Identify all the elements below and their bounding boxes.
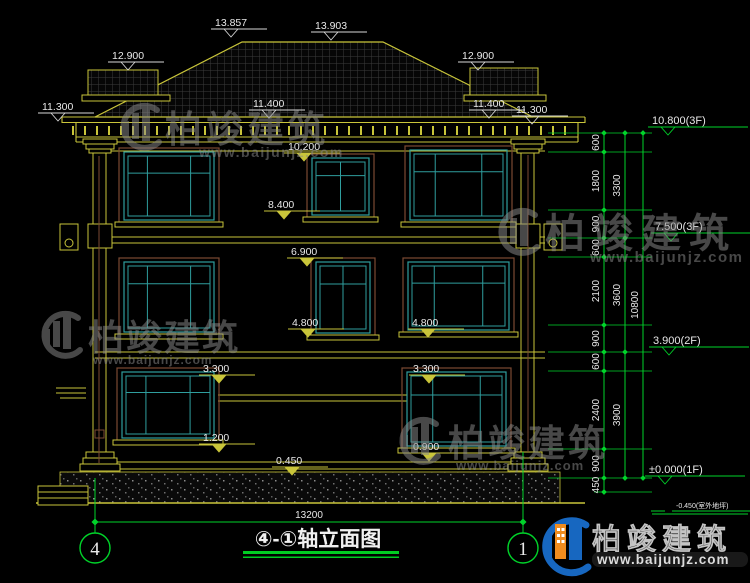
title-underline-thick <box>243 551 399 554</box>
elevation-label: 12.900 <box>462 50 494 62</box>
dimension-tick <box>601 349 607 355</box>
elevation-label: 11.400 <box>473 98 504 110</box>
dimension-tick <box>622 130 628 136</box>
watermark-url: www.baijunjz.com <box>589 249 743 266</box>
cad-elevation-drawing: { "meta": { "title_text": "④-①轴立面图" }, "… <box>0 0 750 583</box>
entry-steps <box>38 486 88 505</box>
dimension-value: 1800 <box>591 169 602 192</box>
dimension-value: 3600 <box>612 283 623 306</box>
dimension-value: 450 <box>591 476 602 493</box>
elevation-label: 11.300 <box>42 101 73 113</box>
elevation-label: 3.900(2F) <box>653 335 701 347</box>
dimension-tick <box>601 475 607 481</box>
roof-elevation-marker: 13.857 <box>211 17 267 37</box>
dimension-value: 2400 <box>591 398 602 421</box>
dimension-tick <box>622 475 628 481</box>
brand-logo: 柏竣建筑 www.baijunjz.com <box>546 519 748 573</box>
drawing-title: ④-①轴立面图 <box>255 527 382 551</box>
dimension-tick <box>601 322 607 328</box>
left-canopy-lines <box>56 388 86 398</box>
dimension-tick <box>601 368 607 374</box>
elevation-label: 3.300 <box>413 363 439 375</box>
dimension-tick <box>601 130 607 136</box>
elevation-label: 12.900 <box>112 50 144 62</box>
elevation-label: 11.300 <box>516 104 547 116</box>
elevation-label: ±0.000(1F) <box>649 464 703 476</box>
watermark-url: www.baijunjz.com <box>92 353 213 367</box>
window <box>401 146 516 227</box>
right-secondary-roof <box>470 68 538 95</box>
dimension-tick <box>640 130 646 136</box>
dimension-tick <box>601 489 607 495</box>
elevation-label: 1.200 <box>203 432 229 444</box>
facade-elevation-marker: 1.200 <box>199 432 255 452</box>
dimension-value: 2100 <box>591 279 602 302</box>
watermark-left: 柏竣建筑 www.baijunjz.com <box>44 314 240 367</box>
grid-bubble-1-label: 1 <box>518 539 528 560</box>
watermark-brand: 柏竣建筑 <box>88 317 240 358</box>
left-secondary-roof <box>88 70 158 95</box>
dimension-value: 900 <box>591 330 602 347</box>
left-secondary-eave <box>82 95 170 101</box>
bottom-dimension-value: 13200 <box>295 510 323 521</box>
dimension-value: 600 <box>591 134 602 151</box>
elevation-label: 4.800 <box>412 317 438 329</box>
drawing-canvas: 6001800900600210090060024009004503300360… <box>0 0 750 583</box>
roof-elevation-marker: 11.300 <box>38 101 94 121</box>
left-column <box>80 139 120 471</box>
window-sill <box>401 222 516 227</box>
elevation-label: 6.900 <box>291 246 317 258</box>
facade-elevation-marker: 4.800 <box>288 317 344 337</box>
elevation-label: 13.903 <box>315 20 347 32</box>
logo-bar-icon <box>546 534 552 558</box>
watermark-url: www.baijunjz.com <box>198 144 344 160</box>
roof-elevation-marker: 11.300 <box>512 104 568 124</box>
title-underline-thin <box>243 557 399 559</box>
dimension-tick <box>622 349 628 355</box>
elevation-label: 13.857 <box>215 17 247 29</box>
ground-level-marker: -0.450(室外地坪) <box>651 501 750 511</box>
elevation-label: 0.450 <box>276 455 302 467</box>
floor-level-marker: ±0.000(1F) <box>645 464 745 484</box>
window-sill <box>115 222 223 227</box>
dimension-value: 3300 <box>612 174 623 197</box>
grid-bubble-4-label: 4 <box>90 539 100 560</box>
dimension-tick <box>601 149 607 155</box>
window <box>303 154 378 222</box>
roof-elevation-marker: 12.900 <box>108 50 164 70</box>
logo-url-text: www.baijunjz.com <box>596 552 730 567</box>
elevation-label: 4.800 <box>292 317 318 329</box>
window-sill <box>303 217 378 222</box>
watermark-url: www.baijunjz.com <box>455 458 584 473</box>
plinth <box>60 472 560 503</box>
facade-elevation-marker: 6.900 <box>287 246 343 266</box>
logo-brand-text: 柏竣建筑 <box>592 522 732 556</box>
facade-elevation-marker: 3.300 <box>409 363 465 383</box>
dimension-tick <box>640 475 646 481</box>
elevation-label: 8.400 <box>268 199 294 211</box>
dimension-value: 600 <box>591 353 602 370</box>
roof-elevation-marker: 13.903 <box>311 20 367 40</box>
elevation-label: -0.450(室外地坪) <box>676 501 729 510</box>
window-sill <box>399 332 518 337</box>
floor-level-marker: 3.900(2F) <box>649 335 749 355</box>
dimension-total: 10800 <box>630 291 641 319</box>
elevation-label: 10.800(3F) <box>652 115 706 127</box>
dimension-value: 3900 <box>612 403 623 426</box>
logo-tower-icon <box>569 519 582 560</box>
roof-elevation-marker: 12.900 <box>458 50 514 70</box>
floor-level-marker: 10.800(3F) <box>648 115 748 135</box>
window-sill <box>307 335 379 340</box>
